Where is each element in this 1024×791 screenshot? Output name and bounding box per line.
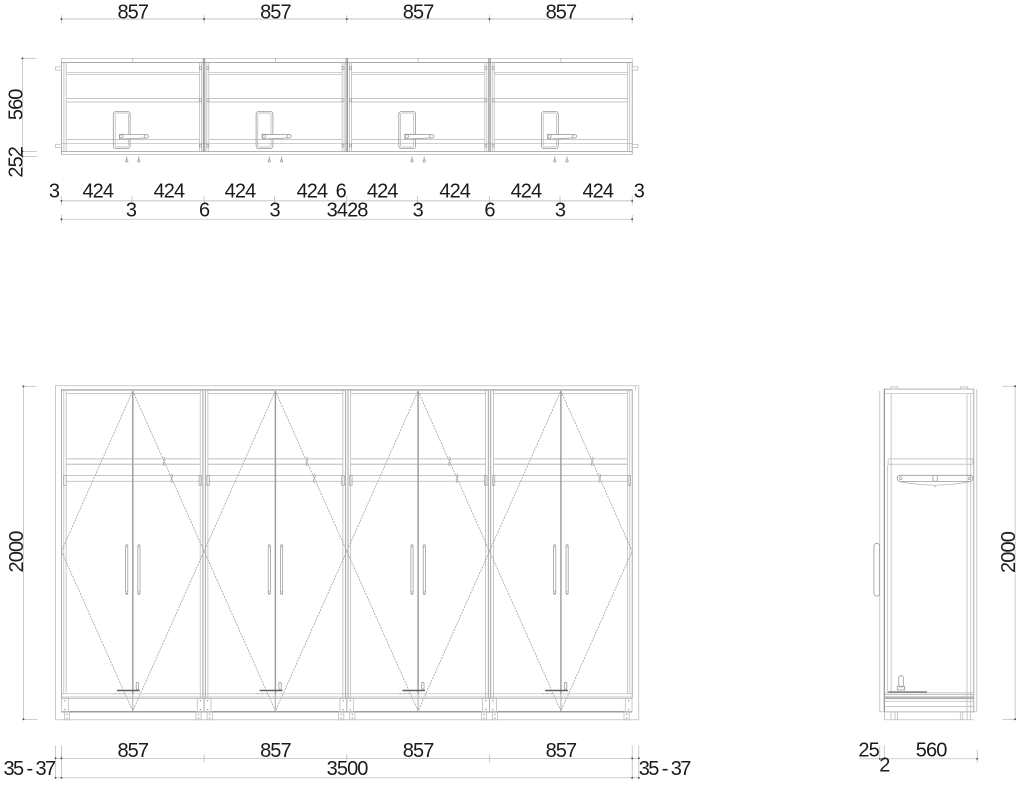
svg-text:857: 857 xyxy=(117,2,148,24)
svg-text:3: 3 xyxy=(49,180,60,202)
svg-text:560: 560 xyxy=(916,739,947,761)
svg-text:560: 560 xyxy=(5,89,27,120)
svg-text:857: 857 xyxy=(546,2,577,24)
svg-text:857: 857 xyxy=(260,2,291,24)
svg-text:857: 857 xyxy=(117,740,148,762)
svg-text:6: 6 xyxy=(484,199,495,221)
svg-text:2000: 2000 xyxy=(998,531,1020,573)
svg-text:424: 424 xyxy=(511,180,542,202)
svg-text:424: 424 xyxy=(367,180,398,202)
svg-text:35 - 37: 35 - 37 xyxy=(639,758,692,780)
svg-text:857: 857 xyxy=(546,740,577,762)
svg-text:2: 2 xyxy=(879,755,890,777)
svg-text:424: 424 xyxy=(297,180,328,202)
svg-text:2000: 2000 xyxy=(6,531,28,573)
svg-text:252: 252 xyxy=(5,146,27,177)
svg-text:857: 857 xyxy=(403,2,434,24)
svg-text:3: 3 xyxy=(634,180,645,202)
svg-text:6: 6 xyxy=(199,199,210,221)
svg-text:424: 424 xyxy=(439,180,470,202)
svg-text:424: 424 xyxy=(82,180,113,202)
svg-text:424: 424 xyxy=(582,180,613,202)
svg-text:3: 3 xyxy=(269,199,280,221)
svg-text:35 - 37: 35 - 37 xyxy=(3,758,56,780)
svg-text:857: 857 xyxy=(403,740,434,762)
svg-text:857: 857 xyxy=(260,740,291,762)
svg-text:424: 424 xyxy=(154,180,185,202)
svg-text:3500: 3500 xyxy=(327,758,369,780)
svg-text:3: 3 xyxy=(555,199,566,221)
svg-text:424: 424 xyxy=(225,180,256,202)
svg-text:3: 3 xyxy=(126,199,137,221)
svg-text:3428: 3428 xyxy=(327,199,369,221)
svg-text:25: 25 xyxy=(858,739,879,761)
svg-text:3: 3 xyxy=(413,199,424,221)
